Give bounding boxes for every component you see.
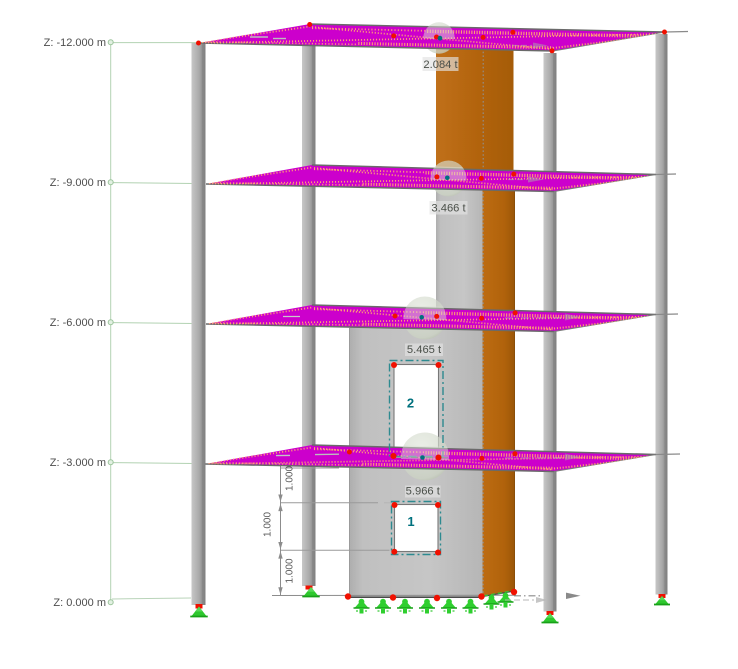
svg-text:2: 2	[407, 396, 414, 411]
svg-text:Z: -6.000 m: Z: -6.000 m	[50, 317, 106, 329]
svg-text:2.084 t: 2.084 t	[423, 59, 458, 71]
svg-text:1.000: 1.000	[285, 466, 296, 491]
svg-text:Z: -3.000 m: Z: -3.000 m	[50, 457, 106, 469]
svg-text:1.000: 1.000	[285, 558, 296, 583]
svg-text:Z: -9.000 m: Z: -9.000 m	[50, 177, 106, 189]
svg-text:Z: 0.000 m: Z: 0.000 m	[53, 597, 106, 609]
svg-text:3.466 t: 3.466 t	[431, 203, 466, 215]
svg-text:1.000: 1.000	[262, 512, 273, 537]
svg-text:1: 1	[407, 514, 414, 529]
svg-text:5.465 t: 5.465 t	[407, 344, 442, 356]
svg-text:5.966 t: 5.966 t	[406, 486, 441, 498]
svg-text:Z: -12.000 m: Z: -12.000 m	[44, 37, 106, 49]
